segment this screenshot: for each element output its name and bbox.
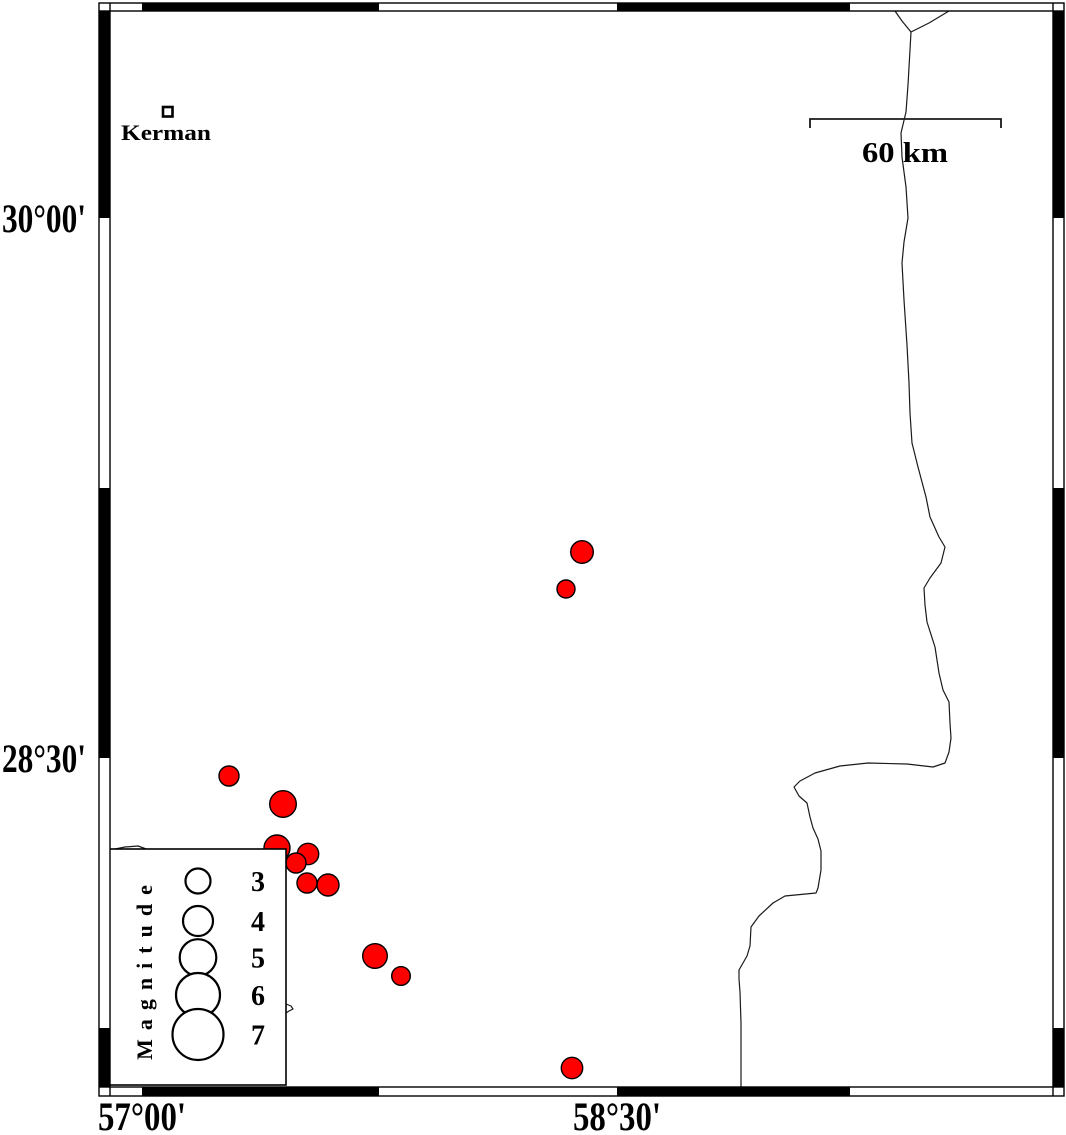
- earthquake-marker: [557, 580, 575, 598]
- lon-label-57-00: 57°00': [98, 1094, 186, 1135]
- place-label: Kerman: [121, 120, 211, 145]
- frame-black-segment: [1053, 488, 1064, 758]
- legend-label-mag-5: 5: [251, 944, 265, 975]
- earthquake-marker: [561, 1057, 582, 1078]
- lon-label-58-30: 58°30': [573, 1094, 661, 1135]
- frame-black-segment: [99, 1028, 110, 1087]
- frame-black-segment: [1053, 1028, 1064, 1087]
- frame-black-segment: [617, 3, 850, 11]
- legend-circle-mag-4: [183, 906, 213, 936]
- legend-circle-mag-5: [180, 939, 217, 976]
- lat-label-30-00: 30°00': [2, 196, 86, 241]
- frame-black-segment: [1053, 11, 1064, 218]
- legend-circle-mag-7: [173, 1009, 224, 1060]
- earthquake-marker: [392, 967, 411, 986]
- frame-black-segment: [142, 3, 379, 11]
- earthquake-marker: [270, 791, 297, 818]
- legend: 34567 Magnitude: [109, 849, 286, 1085]
- frame-black-segment: [99, 488, 110, 758]
- earthquake-marker: [219, 766, 239, 786]
- earthquake-marker: [571, 541, 594, 564]
- legend-label-mag-6: 6: [251, 981, 265, 1012]
- legend-circle-mag-3: [186, 869, 211, 894]
- legend-title: Magnitude: [132, 876, 157, 1060]
- legend-label-mag-3: 3: [251, 867, 265, 898]
- earthquake-marker: [317, 874, 339, 896]
- legend-label-mag-4: 4: [251, 907, 265, 938]
- town-square-icon: [163, 107, 173, 117]
- earthquake-marker: [363, 944, 388, 969]
- scale-bar-label: 60 km: [862, 138, 948, 169]
- earthquake-marker: [297, 873, 317, 893]
- lat-label-28-30: 28°30': [2, 736, 86, 781]
- seismicity-map: 60 km Kerman 34567 Magnitude 30°00: [0, 0, 1066, 1135]
- legend-label-mag-7: 7: [251, 1021, 265, 1052]
- earthquake-marker: [286, 853, 306, 873]
- map-canvas: 60 km Kerman 34567 Magnitude 30°00: [0, 0, 1066, 1135]
- frame-black-segment: [99, 11, 110, 218]
